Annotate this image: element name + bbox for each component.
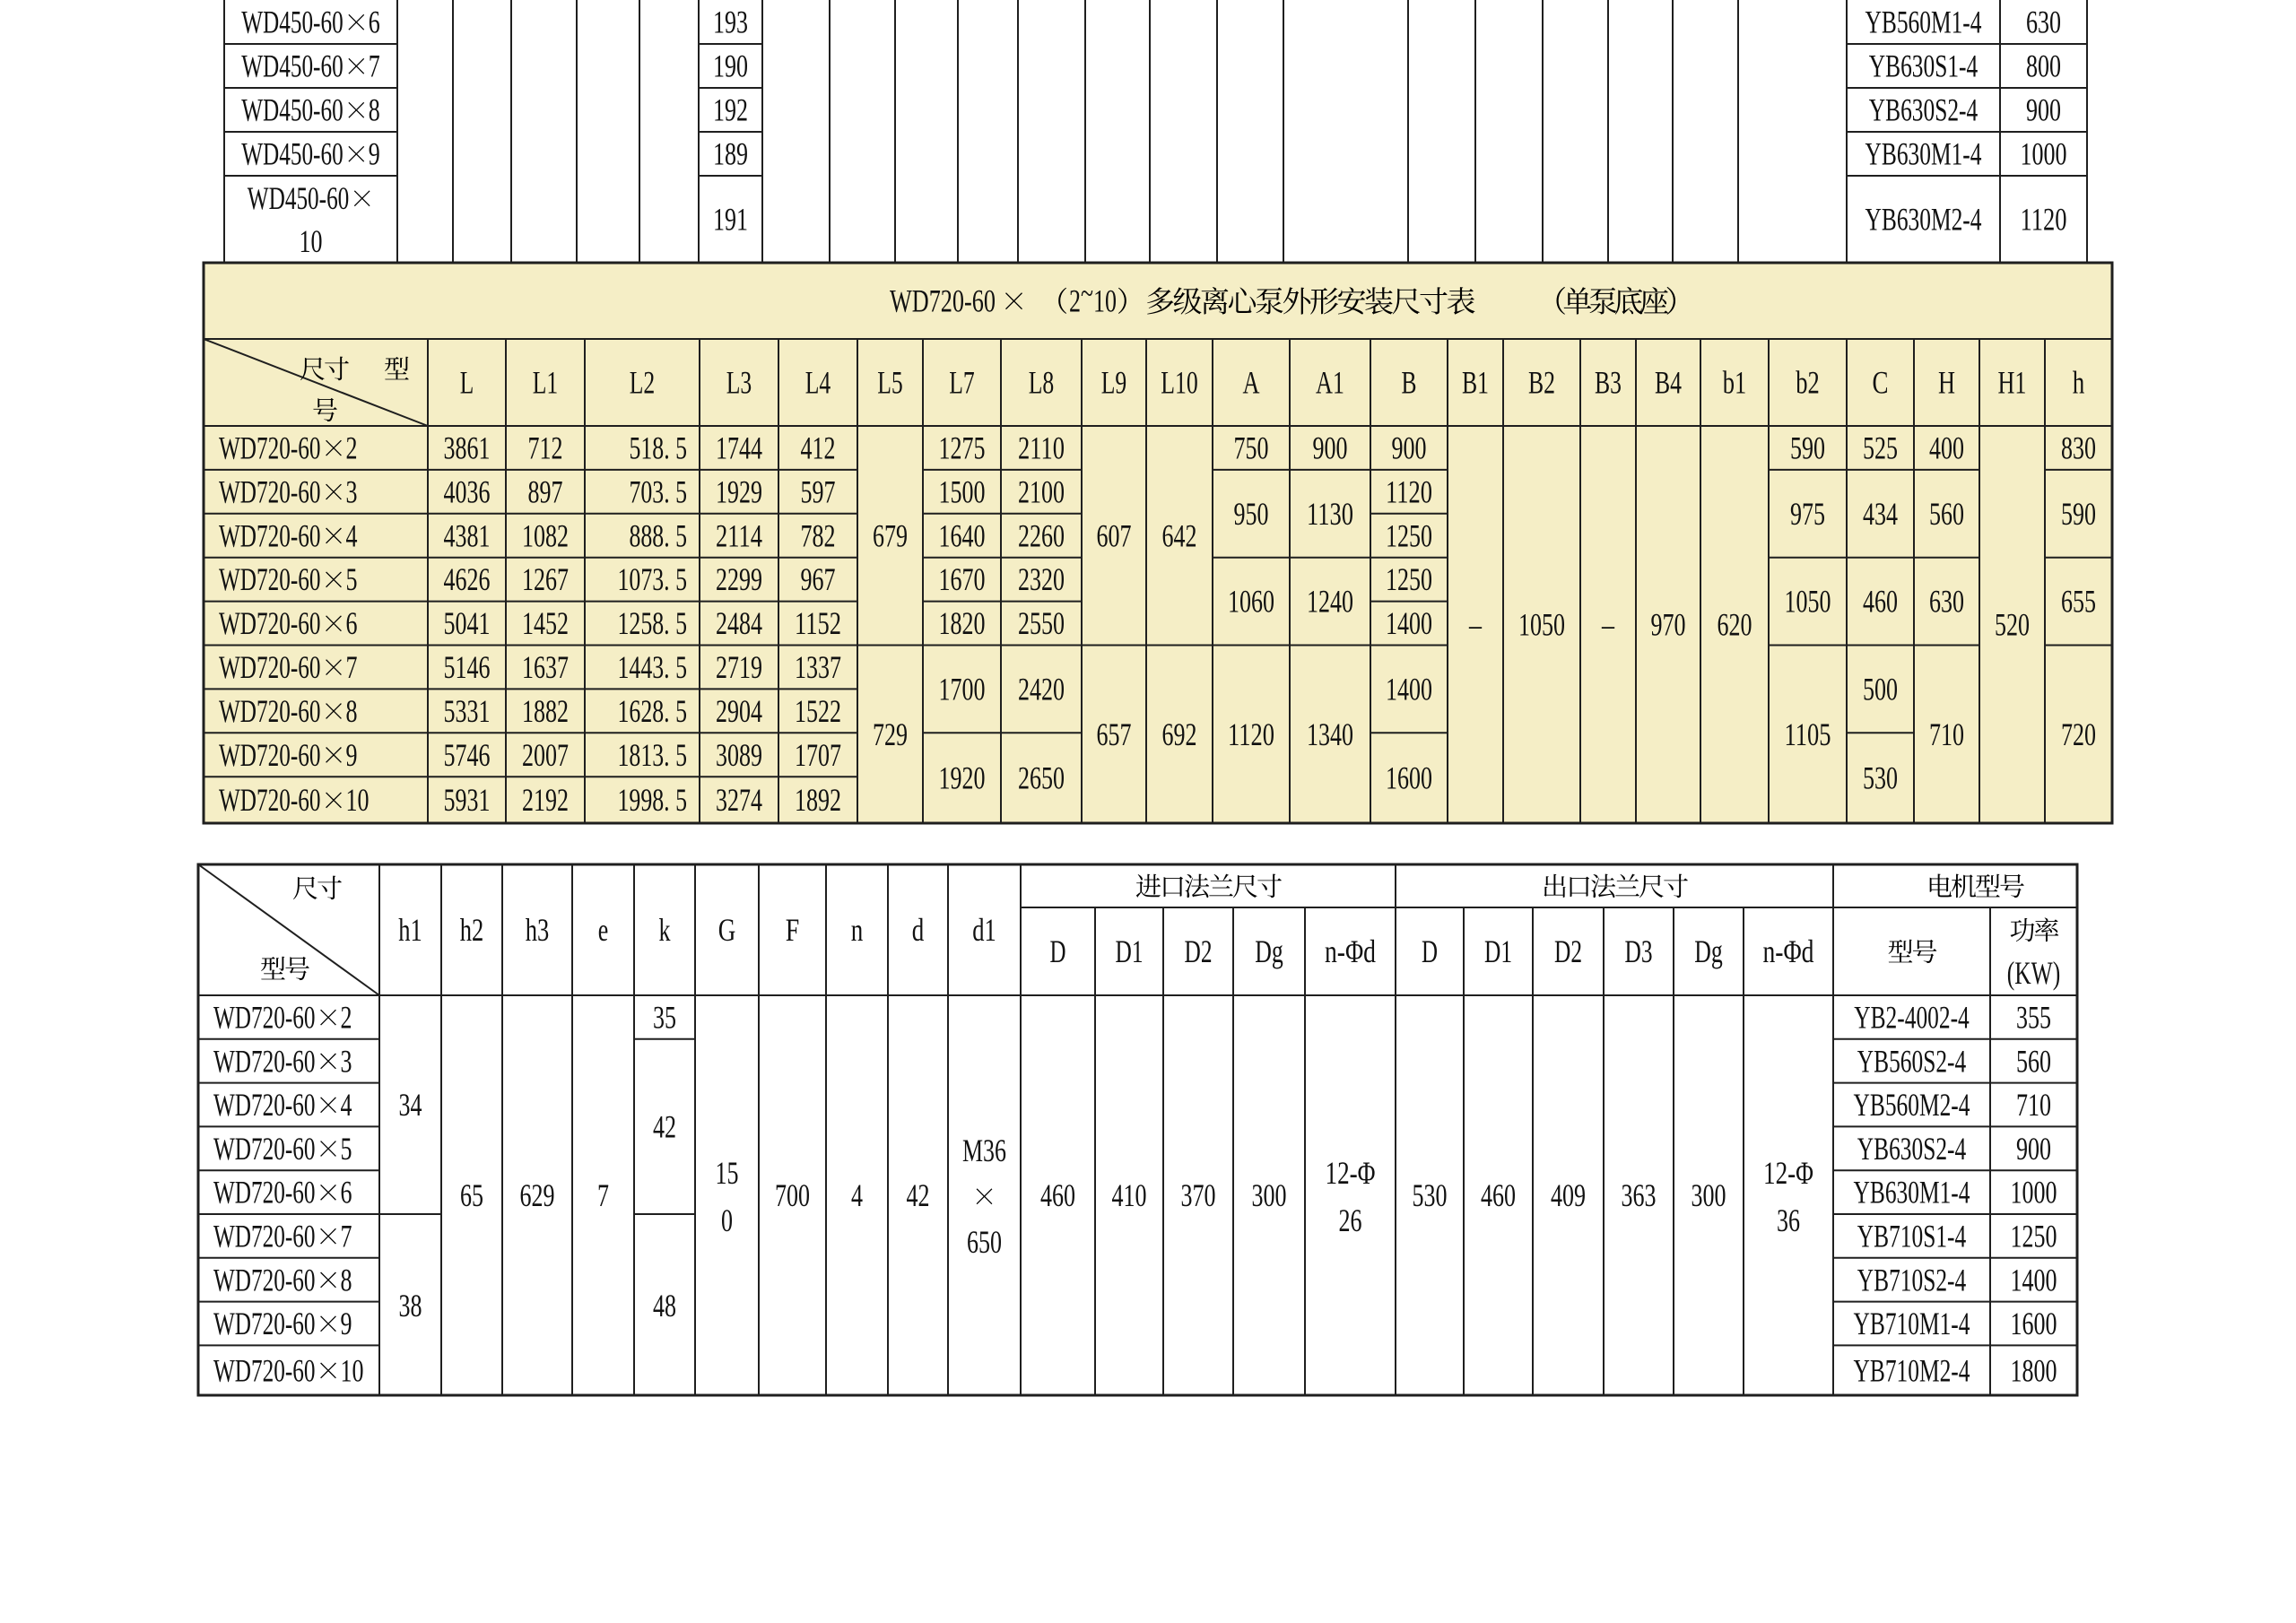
svg-text:26: 26	[1339, 1202, 1362, 1238]
svg-text:YB560M1-4: YB560M1-4	[1865, 4, 1982, 40]
svg-text:1892: 1892	[795, 782, 841, 818]
svg-text:YB710S1-4: YB710S1-4	[1857, 1219, 1967, 1254]
svg-text:1998. 5: 1998. 5	[618, 782, 688, 818]
svg-text:1707: 1707	[795, 737, 841, 773]
svg-text:e: e	[598, 912, 609, 948]
svg-text:830: 830	[2061, 430, 2096, 466]
svg-text:520: 520	[1995, 607, 2030, 643]
svg-text:692: 692	[1162, 716, 1197, 752]
svg-text:2299: 2299	[716, 561, 762, 597]
svg-text:1522: 1522	[795, 693, 841, 729]
svg-text:WD720-60: WD720-60	[219, 649, 321, 685]
svg-text:363: 363	[1622, 1177, 1657, 1213]
svg-text:D3: D3	[1625, 933, 1653, 969]
svg-text:630: 630	[2026, 4, 2061, 40]
svg-text:5: 5	[346, 561, 358, 597]
svg-text:1120: 1120	[2021, 202, 2067, 238]
svg-text:900: 900	[2016, 1131, 2051, 1167]
svg-text:12-Φ: 12-Φ	[1326, 1155, 1376, 1191]
svg-text:10: 10	[1093, 283, 1117, 319]
svg-text:WD450-60: WD450-60	[241, 48, 344, 84]
svg-text:1105: 1105	[1785, 716, 1831, 752]
svg-text:YB710M2-4: YB710M2-4	[1854, 1352, 1970, 1388]
svg-text:500: 500	[1863, 672, 1898, 707]
svg-text:460: 460	[1481, 1177, 1516, 1213]
svg-text:7: 7	[341, 1219, 352, 1254]
svg-text:370: 370	[1181, 1177, 1216, 1213]
svg-text:B4: B4	[1655, 365, 1682, 401]
svg-text:2: 2	[1069, 283, 1081, 319]
svg-text:888. 5: 888. 5	[630, 517, 688, 553]
svg-text:10: 10	[300, 223, 323, 259]
svg-text:2007: 2007	[522, 737, 569, 773]
svg-text:9: 9	[369, 136, 380, 172]
svg-text:2320: 2320	[1018, 561, 1065, 597]
svg-text:1800: 1800	[2011, 1352, 2057, 1388]
svg-text:1120: 1120	[1228, 716, 1274, 752]
svg-text:48: 48	[653, 1288, 676, 1324]
svg-text:F: F	[786, 912, 800, 948]
svg-text:2: 2	[341, 1000, 352, 1036]
svg-text:b1: b1	[1723, 365, 1747, 401]
svg-text:1400: 1400	[1386, 672, 1432, 707]
svg-text:800: 800	[2026, 48, 2061, 84]
svg-text:655: 655	[2061, 584, 2096, 620]
svg-text:1500: 1500	[939, 473, 986, 509]
svg-text:5331: 5331	[444, 693, 491, 729]
svg-text:2: 2	[346, 430, 358, 466]
svg-text:970: 970	[1651, 607, 1686, 643]
svg-text:D2: D2	[1554, 933, 1582, 969]
svg-text:1152: 1152	[795, 605, 841, 641]
svg-text:975: 975	[1790, 496, 1825, 532]
svg-text:WD450-60: WD450-60	[241, 4, 344, 40]
svg-text:WD450-60: WD450-60	[241, 92, 344, 128]
svg-text:15: 15	[716, 1155, 739, 1191]
svg-text:4036: 4036	[444, 473, 491, 509]
svg-text:b2: b2	[1796, 365, 1820, 401]
svg-text:300: 300	[1252, 1177, 1287, 1213]
svg-text:M36: M36	[962, 1133, 1006, 1168]
svg-text:7: 7	[369, 48, 380, 84]
svg-text:1130: 1130	[1307, 496, 1353, 532]
svg-text:B2: B2	[1528, 365, 1555, 401]
svg-text:WD720-60: WD720-60	[213, 1131, 316, 1167]
svg-text:1340: 1340	[1307, 716, 1353, 752]
svg-text:d: d	[912, 912, 925, 948]
svg-text:590: 590	[2061, 496, 2096, 532]
svg-text:1337: 1337	[795, 649, 841, 685]
svg-text:WD720-60: WD720-60	[219, 693, 321, 729]
svg-text:2110: 2110	[1018, 430, 1065, 466]
svg-text:WD720-60: WD720-60	[890, 283, 996, 319]
svg-text:L9: L9	[1101, 365, 1127, 401]
svg-text:4626: 4626	[444, 561, 491, 597]
svg-text:355: 355	[2016, 1000, 2051, 1036]
svg-text:H: H	[1938, 365, 1955, 401]
svg-text:L5: L5	[877, 365, 903, 401]
svg-text:750: 750	[1234, 430, 1269, 466]
svg-text:720: 720	[2061, 716, 2096, 752]
svg-text:2192: 2192	[522, 782, 569, 818]
svg-text:C: C	[1873, 365, 1889, 401]
svg-text:3861: 3861	[444, 430, 491, 466]
svg-text:6: 6	[341, 1175, 352, 1211]
svg-text:7: 7	[346, 649, 358, 685]
svg-text:42: 42	[907, 1177, 930, 1213]
svg-text:n: n	[851, 912, 864, 948]
svg-text:34: 34	[399, 1087, 422, 1123]
svg-text:1250: 1250	[1386, 517, 1432, 553]
svg-text:WD720-60: WD720-60	[219, 737, 321, 773]
svg-text:193: 193	[713, 4, 748, 40]
svg-text:192: 192	[713, 92, 748, 128]
svg-text:1400: 1400	[2011, 1262, 2057, 1298]
svg-text:1600: 1600	[2011, 1306, 2057, 1341]
svg-text:782: 782	[801, 517, 836, 553]
svg-text:B3: B3	[1595, 365, 1622, 401]
svg-text:1700: 1700	[939, 672, 986, 707]
svg-text:WD720-60: WD720-60	[219, 605, 321, 641]
svg-text:897: 897	[528, 473, 563, 509]
svg-text:WD720-60: WD720-60	[213, 1219, 316, 1254]
svg-text:3: 3	[346, 473, 358, 509]
svg-text:434: 434	[1863, 496, 1898, 532]
svg-text:1744: 1744	[716, 430, 762, 466]
svg-text:5931: 5931	[444, 782, 491, 818]
svg-text:4: 4	[346, 517, 358, 553]
svg-text:6: 6	[369, 4, 380, 40]
svg-text:560: 560	[2016, 1043, 2051, 1079]
svg-text:597: 597	[801, 473, 836, 509]
svg-text:38: 38	[399, 1288, 422, 1324]
svg-text:5: 5	[341, 1131, 352, 1167]
svg-text:YB560M2-4: YB560M2-4	[1854, 1087, 1970, 1123]
svg-text:1275: 1275	[939, 430, 986, 466]
svg-text:WD720-60: WD720-60	[213, 1262, 316, 1298]
svg-text:4: 4	[851, 1177, 863, 1213]
svg-text:YB710M1-4: YB710M1-4	[1854, 1306, 1970, 1341]
svg-text:1000: 1000	[2011, 1175, 2057, 1211]
svg-text:1813. 5: 1813. 5	[618, 737, 688, 773]
svg-text:3274: 3274	[716, 782, 762, 818]
svg-text:8: 8	[341, 1262, 352, 1298]
svg-text:~: ~	[1081, 275, 1093, 311]
svg-text:10: 10	[341, 1352, 364, 1388]
svg-text:YB630S2-4: YB630S2-4	[1869, 92, 1979, 128]
svg-text:YB710S2-4: YB710S2-4	[1857, 1262, 1967, 1298]
svg-text:YB630S2-4: YB630S2-4	[1857, 1131, 1967, 1167]
svg-text:D2: D2	[1185, 933, 1213, 969]
svg-text:k: k	[659, 912, 671, 948]
svg-text:518. 5: 518. 5	[630, 430, 688, 466]
svg-text:1820: 1820	[939, 605, 986, 641]
svg-text:YB630M1-4: YB630M1-4	[1854, 1175, 1970, 1211]
svg-text:–: –	[1601, 607, 1615, 643]
svg-text:–: –	[1468, 607, 1483, 643]
svg-text:8: 8	[369, 92, 380, 128]
svg-text:1050: 1050	[1518, 607, 1565, 643]
svg-text:h2: h2	[460, 912, 484, 948]
svg-text:1929: 1929	[716, 473, 762, 509]
svg-text:630: 630	[1929, 584, 1964, 620]
svg-text:L: L	[460, 365, 474, 401]
svg-text:WD720-60: WD720-60	[219, 473, 321, 509]
svg-text:H1: H1	[1998, 365, 2027, 401]
svg-text:1050: 1050	[1785, 584, 1831, 620]
svg-text:L4: L4	[805, 365, 831, 401]
svg-text:409: 409	[1551, 1177, 1586, 1213]
svg-text:L2: L2	[630, 365, 656, 401]
svg-text:657: 657	[1097, 716, 1132, 752]
svg-text:12-Φ: 12-Φ	[1763, 1155, 1813, 1191]
svg-text:525: 525	[1863, 430, 1898, 466]
svg-text:1443. 5: 1443. 5	[618, 649, 688, 685]
svg-text:729: 729	[873, 716, 908, 752]
svg-text:412: 412	[801, 430, 836, 466]
svg-text:10: 10	[346, 782, 370, 818]
svg-text:1000: 1000	[2021, 136, 2067, 172]
svg-text:703. 5: 703. 5	[630, 473, 688, 509]
svg-text:WD720-60: WD720-60	[219, 517, 321, 553]
svg-text:1882: 1882	[522, 693, 569, 729]
svg-text:h1: h1	[398, 912, 422, 948]
svg-text:5746: 5746	[444, 737, 491, 773]
svg-text:1920: 1920	[939, 760, 986, 796]
svg-text:410: 410	[1112, 1177, 1147, 1213]
svg-text:607: 607	[1097, 517, 1132, 553]
svg-text:WD720-60: WD720-60	[213, 1306, 316, 1341]
svg-text:191: 191	[713, 202, 748, 238]
svg-text:620: 620	[1718, 607, 1752, 643]
svg-text:WD720-60: WD720-60	[213, 1352, 316, 1388]
svg-text:710: 710	[2016, 1087, 2051, 1123]
svg-text:3089: 3089	[716, 737, 762, 773]
svg-text:590: 590	[1790, 430, 1825, 466]
svg-text:D: D	[1050, 933, 1066, 969]
svg-text:2114: 2114	[716, 517, 762, 553]
svg-text:1637: 1637	[522, 649, 569, 685]
svg-text:9: 9	[346, 737, 358, 773]
svg-text:(KW): (KW)	[2007, 955, 2061, 991]
svg-text:WD720-60: WD720-60	[213, 1043, 316, 1079]
svg-text:460: 460	[1040, 1177, 1075, 1213]
svg-text:1073. 5: 1073. 5	[618, 561, 688, 597]
svg-text:190: 190	[713, 48, 748, 84]
svg-text:B: B	[1402, 365, 1417, 401]
svg-text:1240: 1240	[1307, 584, 1353, 620]
svg-text:900: 900	[2026, 92, 2061, 128]
svg-text:1400: 1400	[1386, 605, 1432, 641]
svg-text:4381: 4381	[444, 517, 491, 553]
svg-text:Dg: Dg	[1694, 933, 1723, 969]
svg-text:1120: 1120	[1386, 473, 1432, 509]
svg-text:400: 400	[1929, 430, 1964, 466]
svg-text:642: 642	[1162, 517, 1197, 553]
svg-text:h: h	[2073, 365, 2085, 401]
svg-text:530: 530	[1413, 1177, 1448, 1213]
svg-text:YB630M2-4: YB630M2-4	[1865, 202, 1982, 238]
svg-text:189: 189	[713, 136, 748, 172]
svg-text:4: 4	[341, 1087, 352, 1123]
svg-text:YB630S1-4: YB630S1-4	[1869, 48, 1979, 84]
svg-text:1250: 1250	[2011, 1219, 2057, 1254]
svg-text:D1: D1	[1116, 933, 1144, 969]
svg-text:YB630M1-4: YB630M1-4	[1865, 136, 1982, 172]
svg-text:Dg: Dg	[1255, 933, 1283, 969]
svg-text:900: 900	[1313, 430, 1348, 466]
svg-text:300: 300	[1692, 1177, 1726, 1213]
svg-text:n-Φd: n-Φd	[1763, 933, 1814, 969]
svg-text:560: 560	[1929, 496, 1964, 532]
svg-text:G: G	[718, 912, 736, 948]
svg-text:L8: L8	[1029, 365, 1055, 401]
svg-text:A: A	[1243, 365, 1260, 401]
svg-text:WD720-60: WD720-60	[213, 1175, 316, 1211]
svg-text:712: 712	[528, 430, 563, 466]
svg-text:B1: B1	[1462, 365, 1489, 401]
svg-text:L10: L10	[1161, 365, 1198, 401]
svg-text:5146: 5146	[444, 649, 491, 685]
svg-text:967: 967	[801, 561, 836, 597]
svg-text:D: D	[1422, 933, 1438, 969]
svg-text:7: 7	[597, 1177, 609, 1213]
svg-text:8: 8	[346, 693, 358, 729]
svg-text:650: 650	[967, 1224, 1002, 1260]
svg-text:679: 679	[873, 517, 908, 553]
svg-text:WD720-60: WD720-60	[213, 1087, 316, 1123]
svg-text:900: 900	[1392, 430, 1427, 466]
svg-text:h3: h3	[526, 912, 550, 948]
svg-text:L1: L1	[533, 365, 559, 401]
svg-text:3: 3	[341, 1043, 352, 1079]
svg-text:1628. 5: 1628. 5	[618, 693, 688, 729]
svg-text:2100: 2100	[1018, 473, 1065, 509]
svg-text:42: 42	[653, 1109, 676, 1145]
svg-text:2484: 2484	[716, 605, 762, 641]
svg-text:36: 36	[1777, 1202, 1800, 1238]
svg-text:700: 700	[775, 1177, 810, 1213]
svg-text:2650: 2650	[1018, 760, 1065, 796]
svg-text:WD720-60: WD720-60	[219, 561, 321, 597]
svg-text:530: 530	[1863, 760, 1898, 796]
svg-text:WD720-60: WD720-60	[219, 782, 321, 818]
svg-text:1258. 5: 1258. 5	[618, 605, 688, 641]
svg-text:d1: d1	[972, 912, 996, 948]
svg-text:n-Φd: n-Φd	[1325, 933, 1376, 969]
svg-text:2550: 2550	[1018, 605, 1065, 641]
svg-text:YB2-4002-4: YB2-4002-4	[1854, 1000, 1970, 1036]
svg-text:629: 629	[520, 1177, 555, 1213]
svg-text:1670: 1670	[939, 561, 986, 597]
svg-text:WD720-60: WD720-60	[213, 1000, 316, 1036]
svg-text:WD720-60: WD720-60	[219, 430, 321, 466]
svg-text:1060: 1060	[1228, 584, 1274, 620]
svg-text:A1: A1	[1316, 365, 1344, 401]
svg-text:5041: 5041	[444, 605, 491, 641]
svg-text:65: 65	[460, 1177, 483, 1213]
svg-text:2719: 2719	[716, 649, 762, 685]
svg-text:WD450-60: WD450-60	[248, 180, 350, 216]
svg-text:1082: 1082	[522, 517, 569, 553]
svg-text:L3: L3	[726, 365, 752, 401]
svg-text:1600: 1600	[1386, 760, 1432, 796]
svg-text:2260: 2260	[1018, 517, 1065, 553]
svg-text:0: 0	[721, 1202, 733, 1238]
svg-text:1640: 1640	[939, 517, 986, 553]
svg-text:1452: 1452	[522, 605, 569, 641]
svg-text:1267: 1267	[522, 561, 569, 597]
svg-text:35: 35	[653, 1000, 676, 1036]
svg-text:2420: 2420	[1018, 672, 1065, 707]
svg-text:710: 710	[1929, 716, 1964, 752]
svg-text:D1: D1	[1484, 933, 1512, 969]
svg-text:6: 6	[346, 605, 358, 641]
svg-text:9: 9	[341, 1306, 352, 1341]
svg-text:YB560S2-4: YB560S2-4	[1857, 1043, 1967, 1079]
svg-text:950: 950	[1234, 496, 1269, 532]
svg-text:1250: 1250	[1386, 561, 1432, 597]
svg-text:WD450-60: WD450-60	[241, 136, 344, 172]
svg-text:2904: 2904	[716, 693, 762, 729]
svg-text:460: 460	[1863, 584, 1898, 620]
svg-text:L7: L7	[949, 365, 975, 401]
